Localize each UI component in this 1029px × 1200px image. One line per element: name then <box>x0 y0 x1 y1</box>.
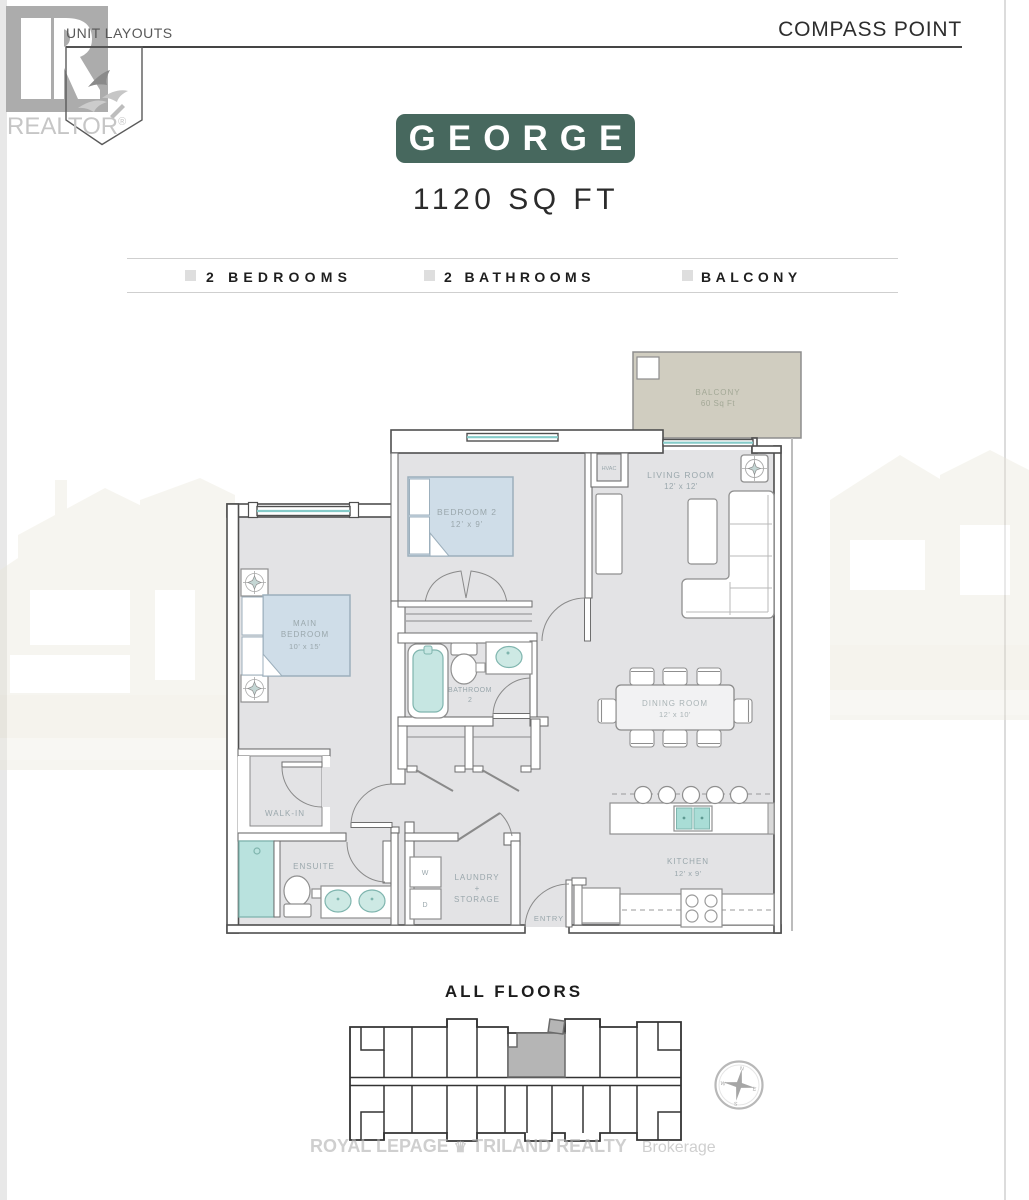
svg-text:DINING ROOM: DINING ROOM <box>642 699 708 708</box>
svg-text:12' x 12': 12' x 12' <box>664 482 698 491</box>
svg-text:10' x 15': 10' x 15' <box>289 642 321 651</box>
svg-text:12' x 9': 12' x 9' <box>674 869 701 878</box>
svg-text:BATHROOM: BATHROOM <box>448 687 492 694</box>
svg-text:ENTRY: ENTRY <box>534 914 564 923</box>
svg-text:KITCHEN: KITCHEN <box>667 857 709 866</box>
svg-text:BEDROOM: BEDROOM <box>281 630 329 639</box>
svg-text:BEDROOM 2: BEDROOM 2 <box>437 507 497 517</box>
svg-text:STORAGE: STORAGE <box>454 895 500 904</box>
svg-text:LIVING ROOM: LIVING ROOM <box>647 470 715 480</box>
svg-text:WALK-IN: WALK-IN <box>265 809 305 818</box>
svg-text:BALCONY: BALCONY <box>695 388 740 397</box>
svg-text:ENSUITE: ENSUITE <box>293 862 335 871</box>
svg-text:HVAC: HVAC <box>602 466 617 472</box>
svg-text:12' x 10': 12' x 10' <box>659 710 691 719</box>
svg-text:12' x 9': 12' x 9' <box>451 520 484 529</box>
svg-text:W: W <box>422 870 429 877</box>
svg-text:LAUNDRY: LAUNDRY <box>454 873 499 882</box>
svg-text:2: 2 <box>468 697 472 704</box>
svg-text:60 Sq Ft: 60 Sq Ft <box>701 399 736 408</box>
svg-text:D: D <box>422 902 427 909</box>
svg-text:MAIN: MAIN <box>293 619 317 628</box>
svg-text:+: + <box>475 884 480 893</box>
